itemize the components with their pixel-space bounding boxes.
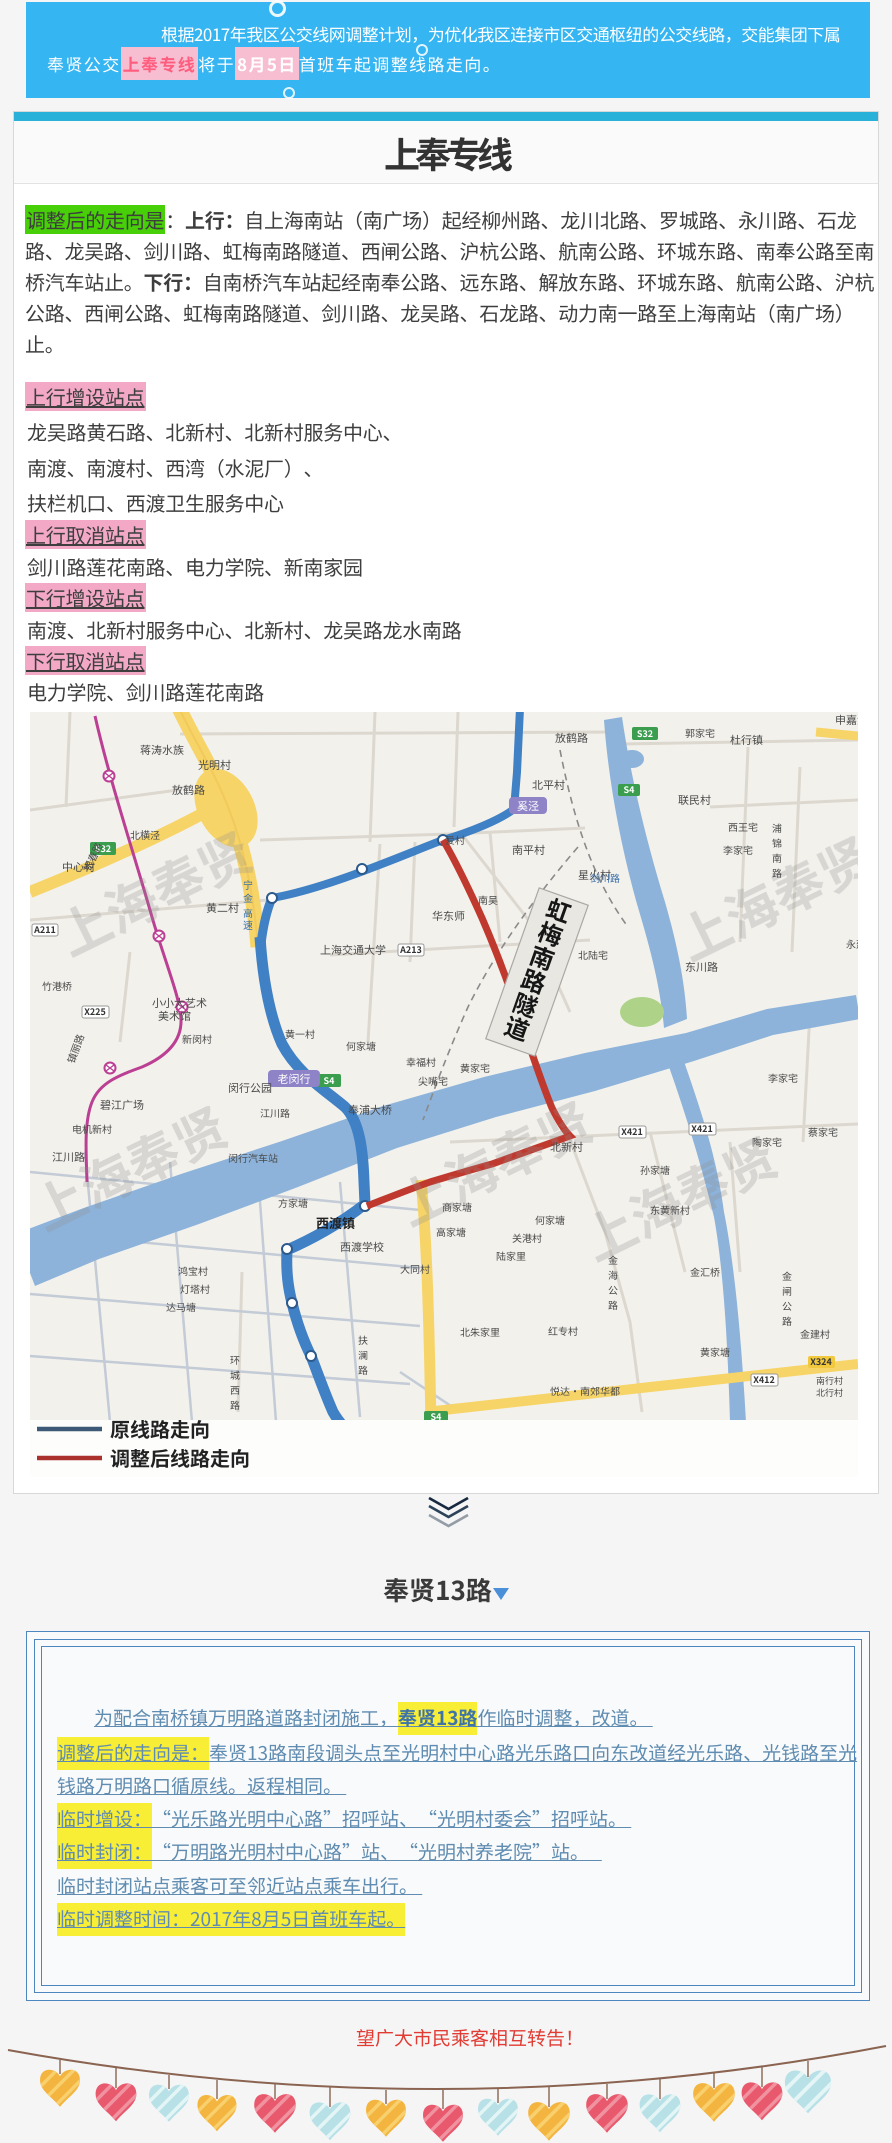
- svg-text:S4: S4: [324, 1074, 336, 1087]
- svg-text:高家塘: 高家塘: [436, 1224, 466, 1239]
- svg-text:北横泾: 北横泾: [130, 827, 160, 842]
- svg-text:剑川路: 剑川路: [590, 870, 620, 885]
- svg-text:江川路: 江川路: [260, 1105, 290, 1120]
- svg-text:碧江广场: 碧江广场: [100, 1097, 144, 1113]
- svg-text:黄家宅: 黄家宅: [460, 1060, 490, 1075]
- svg-text:联民村: 联民村: [678, 792, 711, 808]
- svg-text:尖嘴宅: 尖嘴宅: [418, 1073, 448, 1088]
- svg-text:金闸公路: 金闸公路: [780, 1268, 795, 1328]
- svg-text:闵行公园: 闵行公园: [228, 1080, 272, 1096]
- svg-text:X421: X421: [691, 1122, 713, 1135]
- svg-text:郭家宅: 郭家宅: [685, 725, 715, 740]
- svg-text:黄家塘: 黄家塘: [700, 1344, 730, 1359]
- svg-text:放鹤路: 放鹤路: [555, 730, 588, 746]
- svg-text:S32: S32: [637, 727, 653, 740]
- svg-text:幸福村: 幸福村: [406, 1054, 436, 1069]
- svg-text:宁金高速: 宁金高速: [241, 879, 256, 930]
- svg-text:原线路走向: 原线路走向: [110, 1414, 210, 1443]
- svg-text:关港村: 关港村: [512, 1230, 542, 1245]
- svg-text:江川路: 江川路: [52, 1149, 85, 1165]
- svg-text:红专村: 红专村: [548, 1323, 578, 1338]
- svg-text:东川路: 东川路: [685, 959, 718, 975]
- svg-text:方家塘: 方家塘: [278, 1195, 308, 1210]
- svg-text:北朱家里: 北朱家里: [460, 1324, 500, 1339]
- svg-text:北行村: 北行村: [816, 1386, 843, 1399]
- svg-text:永建: 永建: [846, 936, 858, 951]
- svg-text:奚泾: 奚泾: [517, 798, 539, 814]
- svg-text:A211: A211: [33, 923, 56, 936]
- svg-text:S4: S4: [624, 783, 636, 796]
- svg-text:X324: X324: [810, 1355, 832, 1368]
- svg-text:奉浦大桥: 奉浦大桥: [348, 1102, 392, 1118]
- svg-text:商家塘: 商家塘: [442, 1199, 472, 1214]
- svg-text:新闵村: 新闵村: [182, 1031, 212, 1046]
- svg-text:黄二村: 黄二村: [206, 900, 239, 916]
- svg-text:南平村: 南平村: [512, 842, 545, 858]
- svg-text:A213: A213: [399, 943, 422, 956]
- svg-text:西渡镇: 西渡镇: [316, 1213, 355, 1232]
- svg-text:鸿宝村: 鸿宝村: [178, 1263, 208, 1278]
- svg-text:上海交通大学: 上海交通大学: [320, 942, 386, 958]
- svg-text:南吴: 南吴: [478, 892, 498, 907]
- svg-text:北新村: 北新村: [550, 1139, 583, 1155]
- svg-text:黄一村: 黄一村: [285, 1026, 315, 1041]
- svg-text:北陆宅: 北陆宅: [578, 947, 608, 962]
- svg-text:放鹤路: 放鹤路: [172, 782, 205, 798]
- svg-text:东黄新村: 东黄新村: [650, 1202, 690, 1217]
- svg-text:大同村: 大同村: [400, 1261, 430, 1276]
- svg-text:陶家宅: 陶家宅: [752, 1134, 782, 1149]
- svg-text:申嘉湖: 申嘉湖: [835, 712, 858, 728]
- svg-text:何家塘: 何家塘: [346, 1038, 376, 1053]
- svg-text:悦达·南郊华都: 悦达·南郊华都: [550, 1383, 620, 1398]
- svg-text:X225: X225: [84, 1005, 106, 1018]
- svg-text:西王宅: 西王宅: [728, 819, 758, 834]
- svg-text:陆家里: 陆家里: [496, 1248, 526, 1263]
- svg-text:西渡学校: 西渡学校: [340, 1239, 384, 1255]
- svg-text:孙家塘: 孙家塘: [640, 1162, 670, 1177]
- svg-text:浦锦南路: 浦锦南路: [770, 820, 785, 880]
- svg-text:金汇桥: 金汇桥: [690, 1264, 720, 1279]
- svg-text:扶澜路: 扶澜路: [356, 1332, 371, 1377]
- svg-text:光明村: 光明村: [198, 757, 231, 773]
- svg-text:爱村: 爱村: [445, 832, 465, 847]
- svg-text:蔡家宅: 蔡家宅: [808, 1124, 838, 1139]
- svg-text:金海公路: 金海公路: [606, 1252, 621, 1312]
- svg-text:X421: X421: [621, 1125, 643, 1138]
- svg-text:美术馆: 美术馆: [158, 1008, 191, 1024]
- svg-text:灯塔村: 灯塔村: [180, 1281, 210, 1296]
- svg-text:电机新村: 电机新村: [72, 1121, 112, 1136]
- svg-text:北平村: 北平村: [532, 777, 565, 793]
- svg-text:闵行汽车站: 闵行汽车站: [228, 1150, 278, 1165]
- svg-text:李家宅: 李家宅: [723, 842, 753, 857]
- svg-text:达马塘: 达马塘: [166, 1299, 196, 1314]
- svg-text:杜行镇: 杜行镇: [730, 732, 763, 748]
- svg-text:金建村: 金建村: [800, 1326, 830, 1341]
- svg-text:何家塘: 何家塘: [535, 1212, 565, 1227]
- svg-text:蒋涛水族: 蒋涛水族: [140, 742, 184, 758]
- svg-text:李家宅: 李家宅: [768, 1070, 798, 1085]
- svg-text:华东师: 华东师: [432, 908, 465, 924]
- svg-text:环城西路: 环城西路: [228, 1352, 243, 1412]
- svg-text:竹港桥: 竹港桥: [42, 978, 72, 993]
- svg-text:X412: X412: [753, 1373, 775, 1386]
- svg-text:老闵行: 老闵行: [278, 1071, 311, 1087]
- svg-text:调整后线路走向: 调整后线路走向: [110, 1443, 250, 1472]
